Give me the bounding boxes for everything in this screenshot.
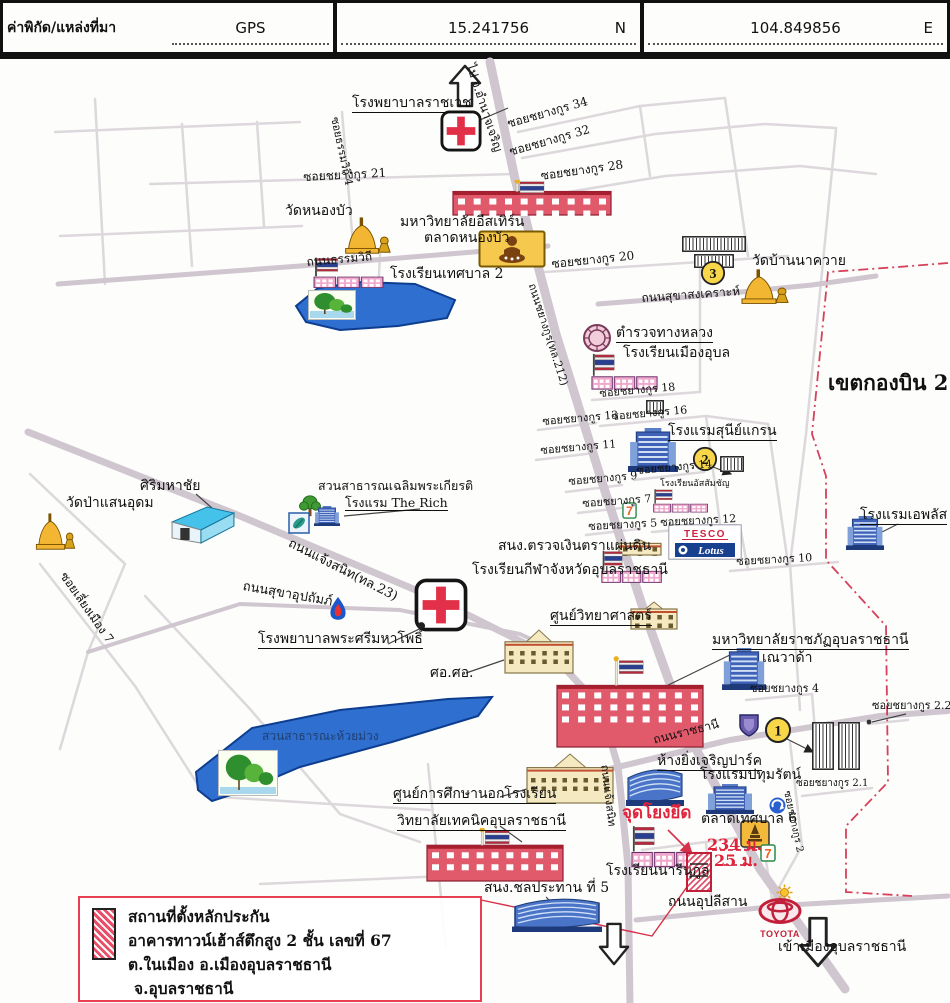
soi22-dot	[867, 720, 872, 725]
lakes	[196, 282, 492, 801]
pointer-lines	[196, 108, 906, 905]
side-streets	[30, 98, 908, 949]
legend-line-3: ต.ในเมือง อ.เมืองอุบลราชธานี	[128, 952, 331, 977]
legend-line-4: จ.อุบลราชธานี	[134, 976, 233, 1001]
collateral-legend-box: สถานที่ตั้งหลักประกัน อาคารทาวน์เฮ้าส์ตึ…	[78, 896, 482, 1002]
main-roads	[28, 62, 948, 1003]
map-canvas: 327TESCOLotus17TOYOTA โรงพยาบาลราชเวชไป …	[0, 55, 950, 1003]
map-document-page: ค่าพิกัด/แหล่งที่มา GPS 15.241756 N 104.…	[0, 0, 950, 1003]
roads-layer	[0, 4, 950, 1003]
legend-line-2: อาคารทาวน์เฮ้าส์ตึกสูง 2 ชั้น เลขที่ 67	[128, 928, 392, 953]
legend-line-1: สถานที่ตั้งหลักประกัน	[128, 904, 270, 929]
wing21-boundary	[812, 263, 948, 896]
collateral-swatch-icon	[92, 908, 116, 960]
